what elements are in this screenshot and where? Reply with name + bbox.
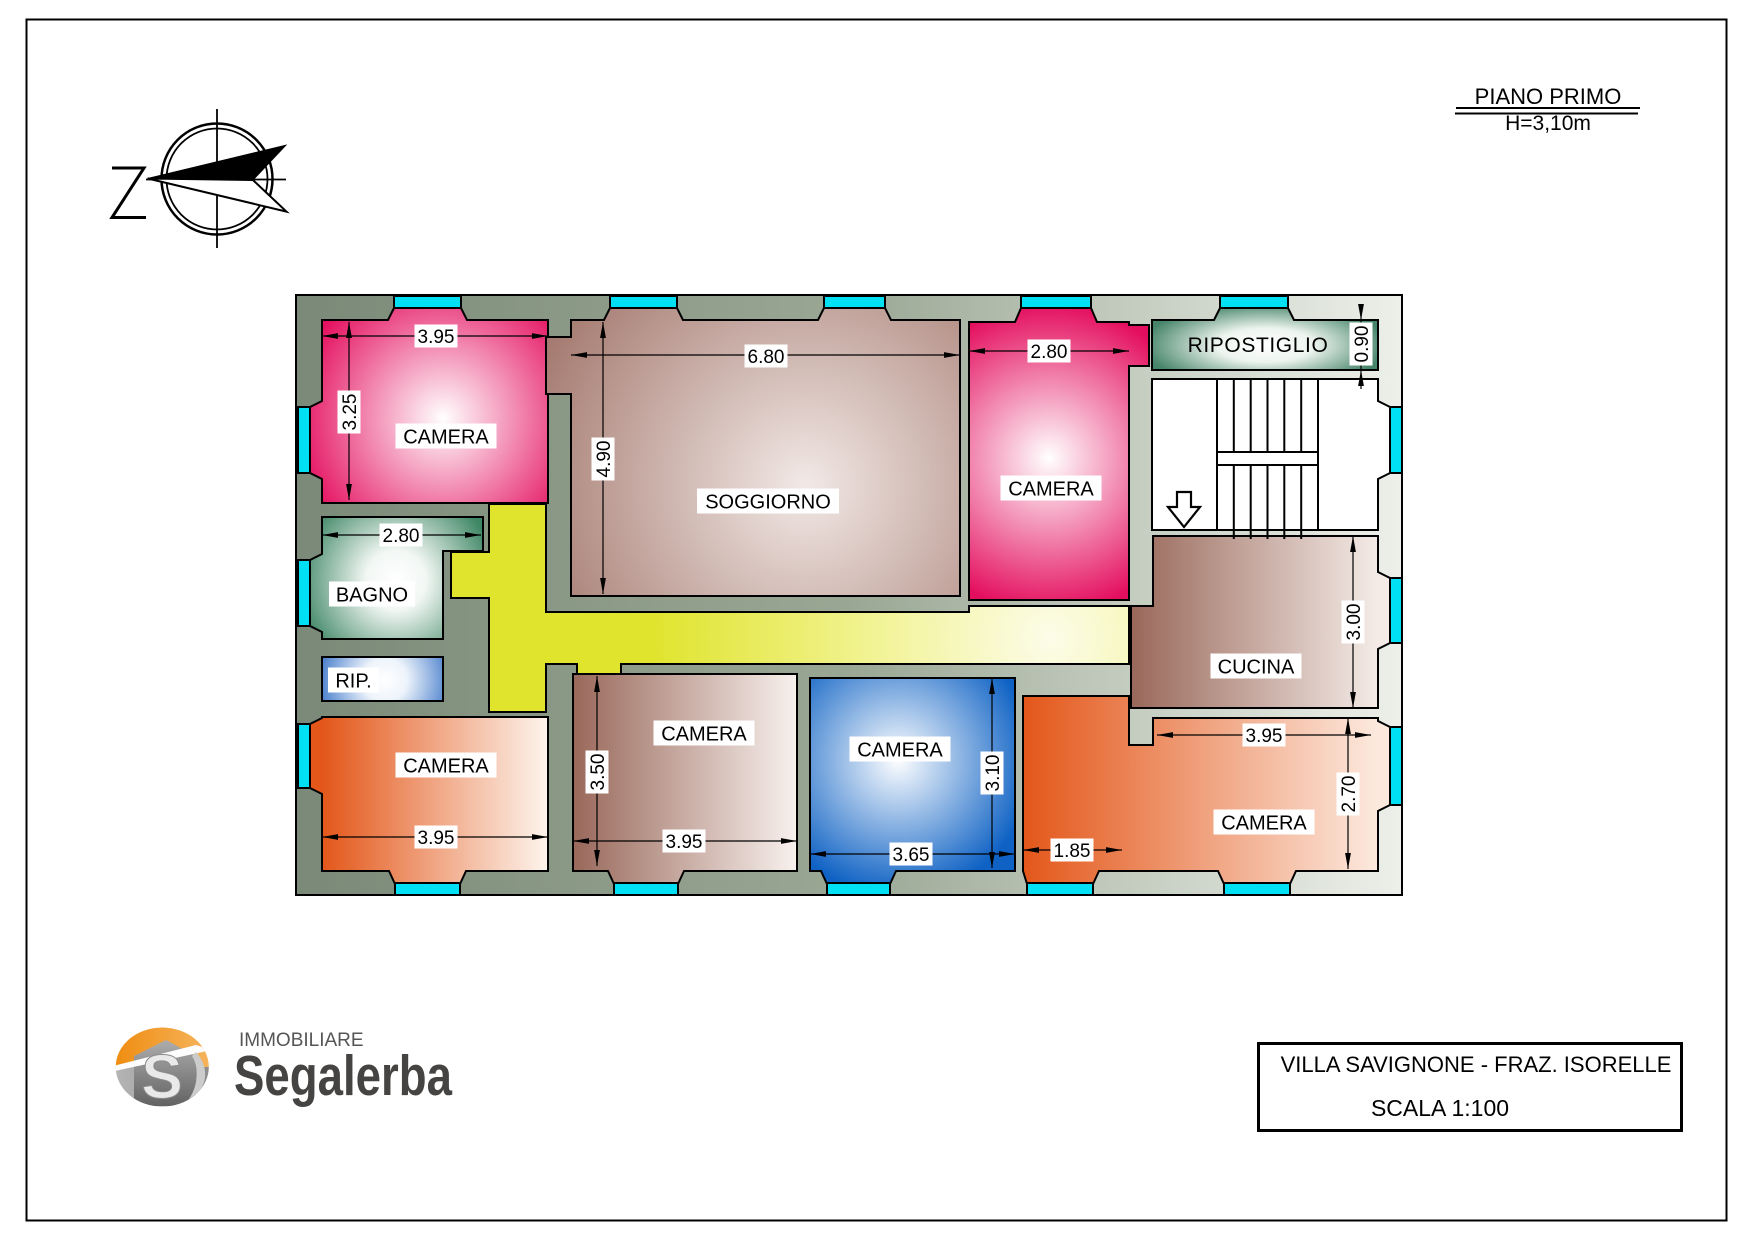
svg-text:PIANO PRIMO: PIANO PRIMO: [1475, 84, 1622, 109]
svg-text:CAMERA: CAMERA: [1008, 479, 1094, 501]
svg-text:CAMERA: CAMERA: [403, 756, 489, 778]
svg-text:CAMERA: CAMERA: [857, 740, 943, 762]
svg-text:3.10: 3.10: [983, 755, 1004, 792]
svg-text:H=3,10m: H=3,10m: [1505, 112, 1591, 135]
svg-text:S: S: [141, 1043, 182, 1112]
svg-text:3.00: 3.00: [1344, 604, 1365, 641]
svg-text:3.65: 3.65: [893, 845, 930, 866]
svg-text:VILLA SAVIGNONE - FRAZ. ISOREL: VILLA SAVIGNONE - FRAZ. ISORELLE: [1281, 1052, 1672, 1077]
svg-text:2.80: 2.80: [1031, 342, 1068, 363]
svg-text:0.90: 0.90: [1352, 326, 1373, 363]
svg-text:CUCINA: CUCINA: [1218, 657, 1295, 679]
svg-text:CAMERA: CAMERA: [1221, 813, 1307, 835]
svg-text:3.50: 3.50: [588, 754, 609, 791]
svg-text:Segalerba: Segalerba: [234, 1043, 453, 1107]
svg-text:3.95: 3.95: [418, 828, 455, 849]
svg-text:CAMERA: CAMERA: [403, 427, 489, 449]
svg-text:SOGGIORNO: SOGGIORNO: [705, 492, 831, 514]
svg-text:3.95: 3.95: [418, 327, 455, 348]
svg-text:CAMERA: CAMERA: [661, 724, 747, 746]
svg-text:3.95: 3.95: [1246, 726, 1283, 747]
svg-text:BAGNO: BAGNO: [336, 585, 408, 607]
svg-text:6.80: 6.80: [748, 347, 785, 368]
svg-text:4.90: 4.90: [594, 441, 615, 478]
svg-text:2.70: 2.70: [1339, 776, 1360, 813]
svg-text:RIPOSTIGLIO: RIPOSTIGLIO: [1188, 334, 1329, 357]
svg-text:3.25: 3.25: [340, 394, 361, 431]
svg-text:3.95: 3.95: [666, 832, 703, 853]
svg-text:RIP.: RIP.: [335, 671, 371, 693]
svg-text:1.85: 1.85: [1054, 841, 1091, 862]
svg-text:2.80: 2.80: [383, 526, 420, 547]
svg-text:SCALA 1:100: SCALA 1:100: [1371, 1095, 1509, 1121]
